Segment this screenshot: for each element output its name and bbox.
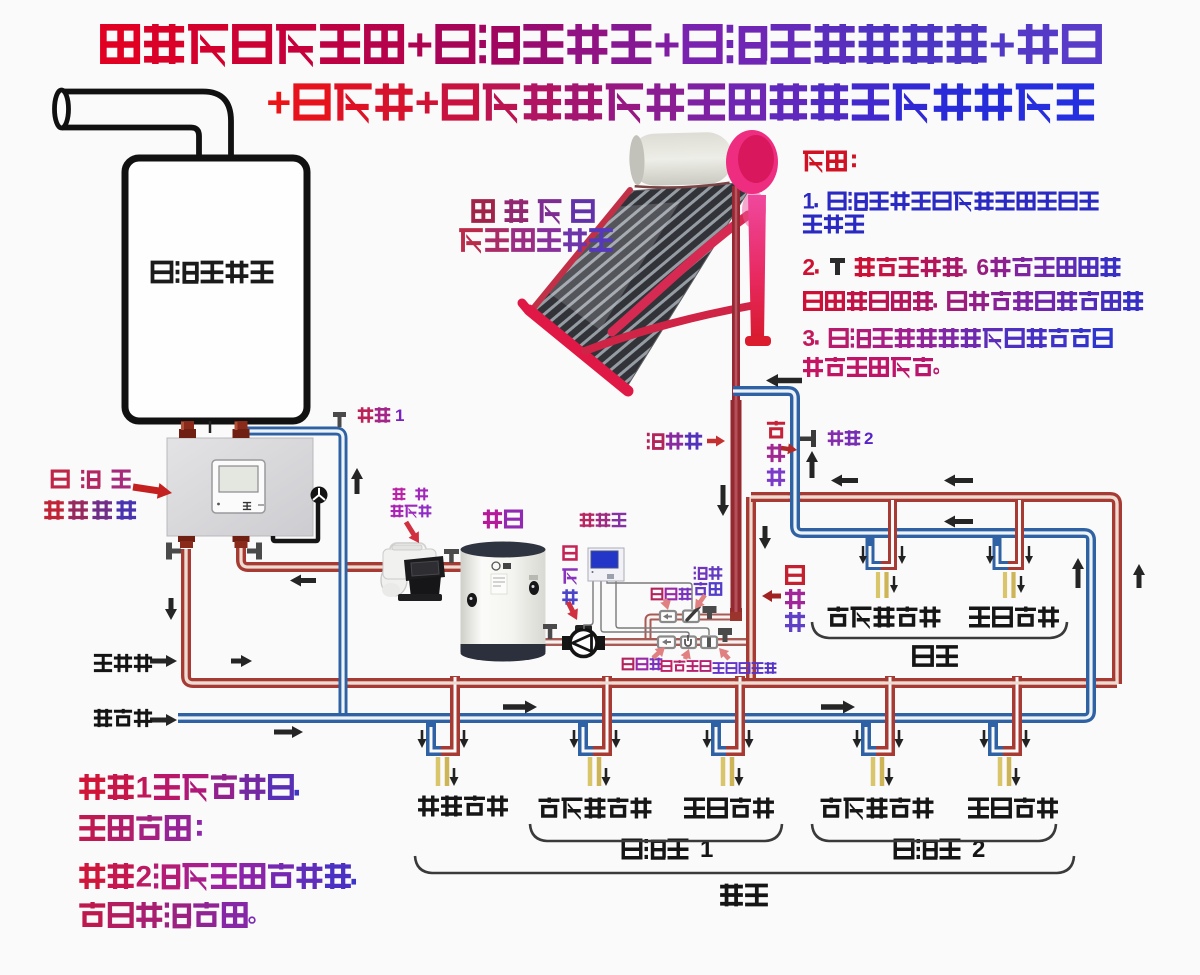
svg-text:3: 3 xyxy=(802,325,815,351)
svg-text:1: 1 xyxy=(802,189,814,214)
svg-text:+: + xyxy=(266,79,291,127)
svg-text:1: 1 xyxy=(136,771,152,804)
svg-text:6: 6 xyxy=(976,254,989,280)
svg-text:+: + xyxy=(654,19,681,70)
svg-text:1: 1 xyxy=(395,406,404,425)
svg-text:2: 2 xyxy=(802,254,815,280)
svg-text:+: + xyxy=(406,19,433,70)
svg-text:+: + xyxy=(989,19,1016,70)
svg-text:+: + xyxy=(415,79,440,127)
svg-text:2: 2 xyxy=(136,860,152,893)
svg-text:2: 2 xyxy=(864,429,873,448)
